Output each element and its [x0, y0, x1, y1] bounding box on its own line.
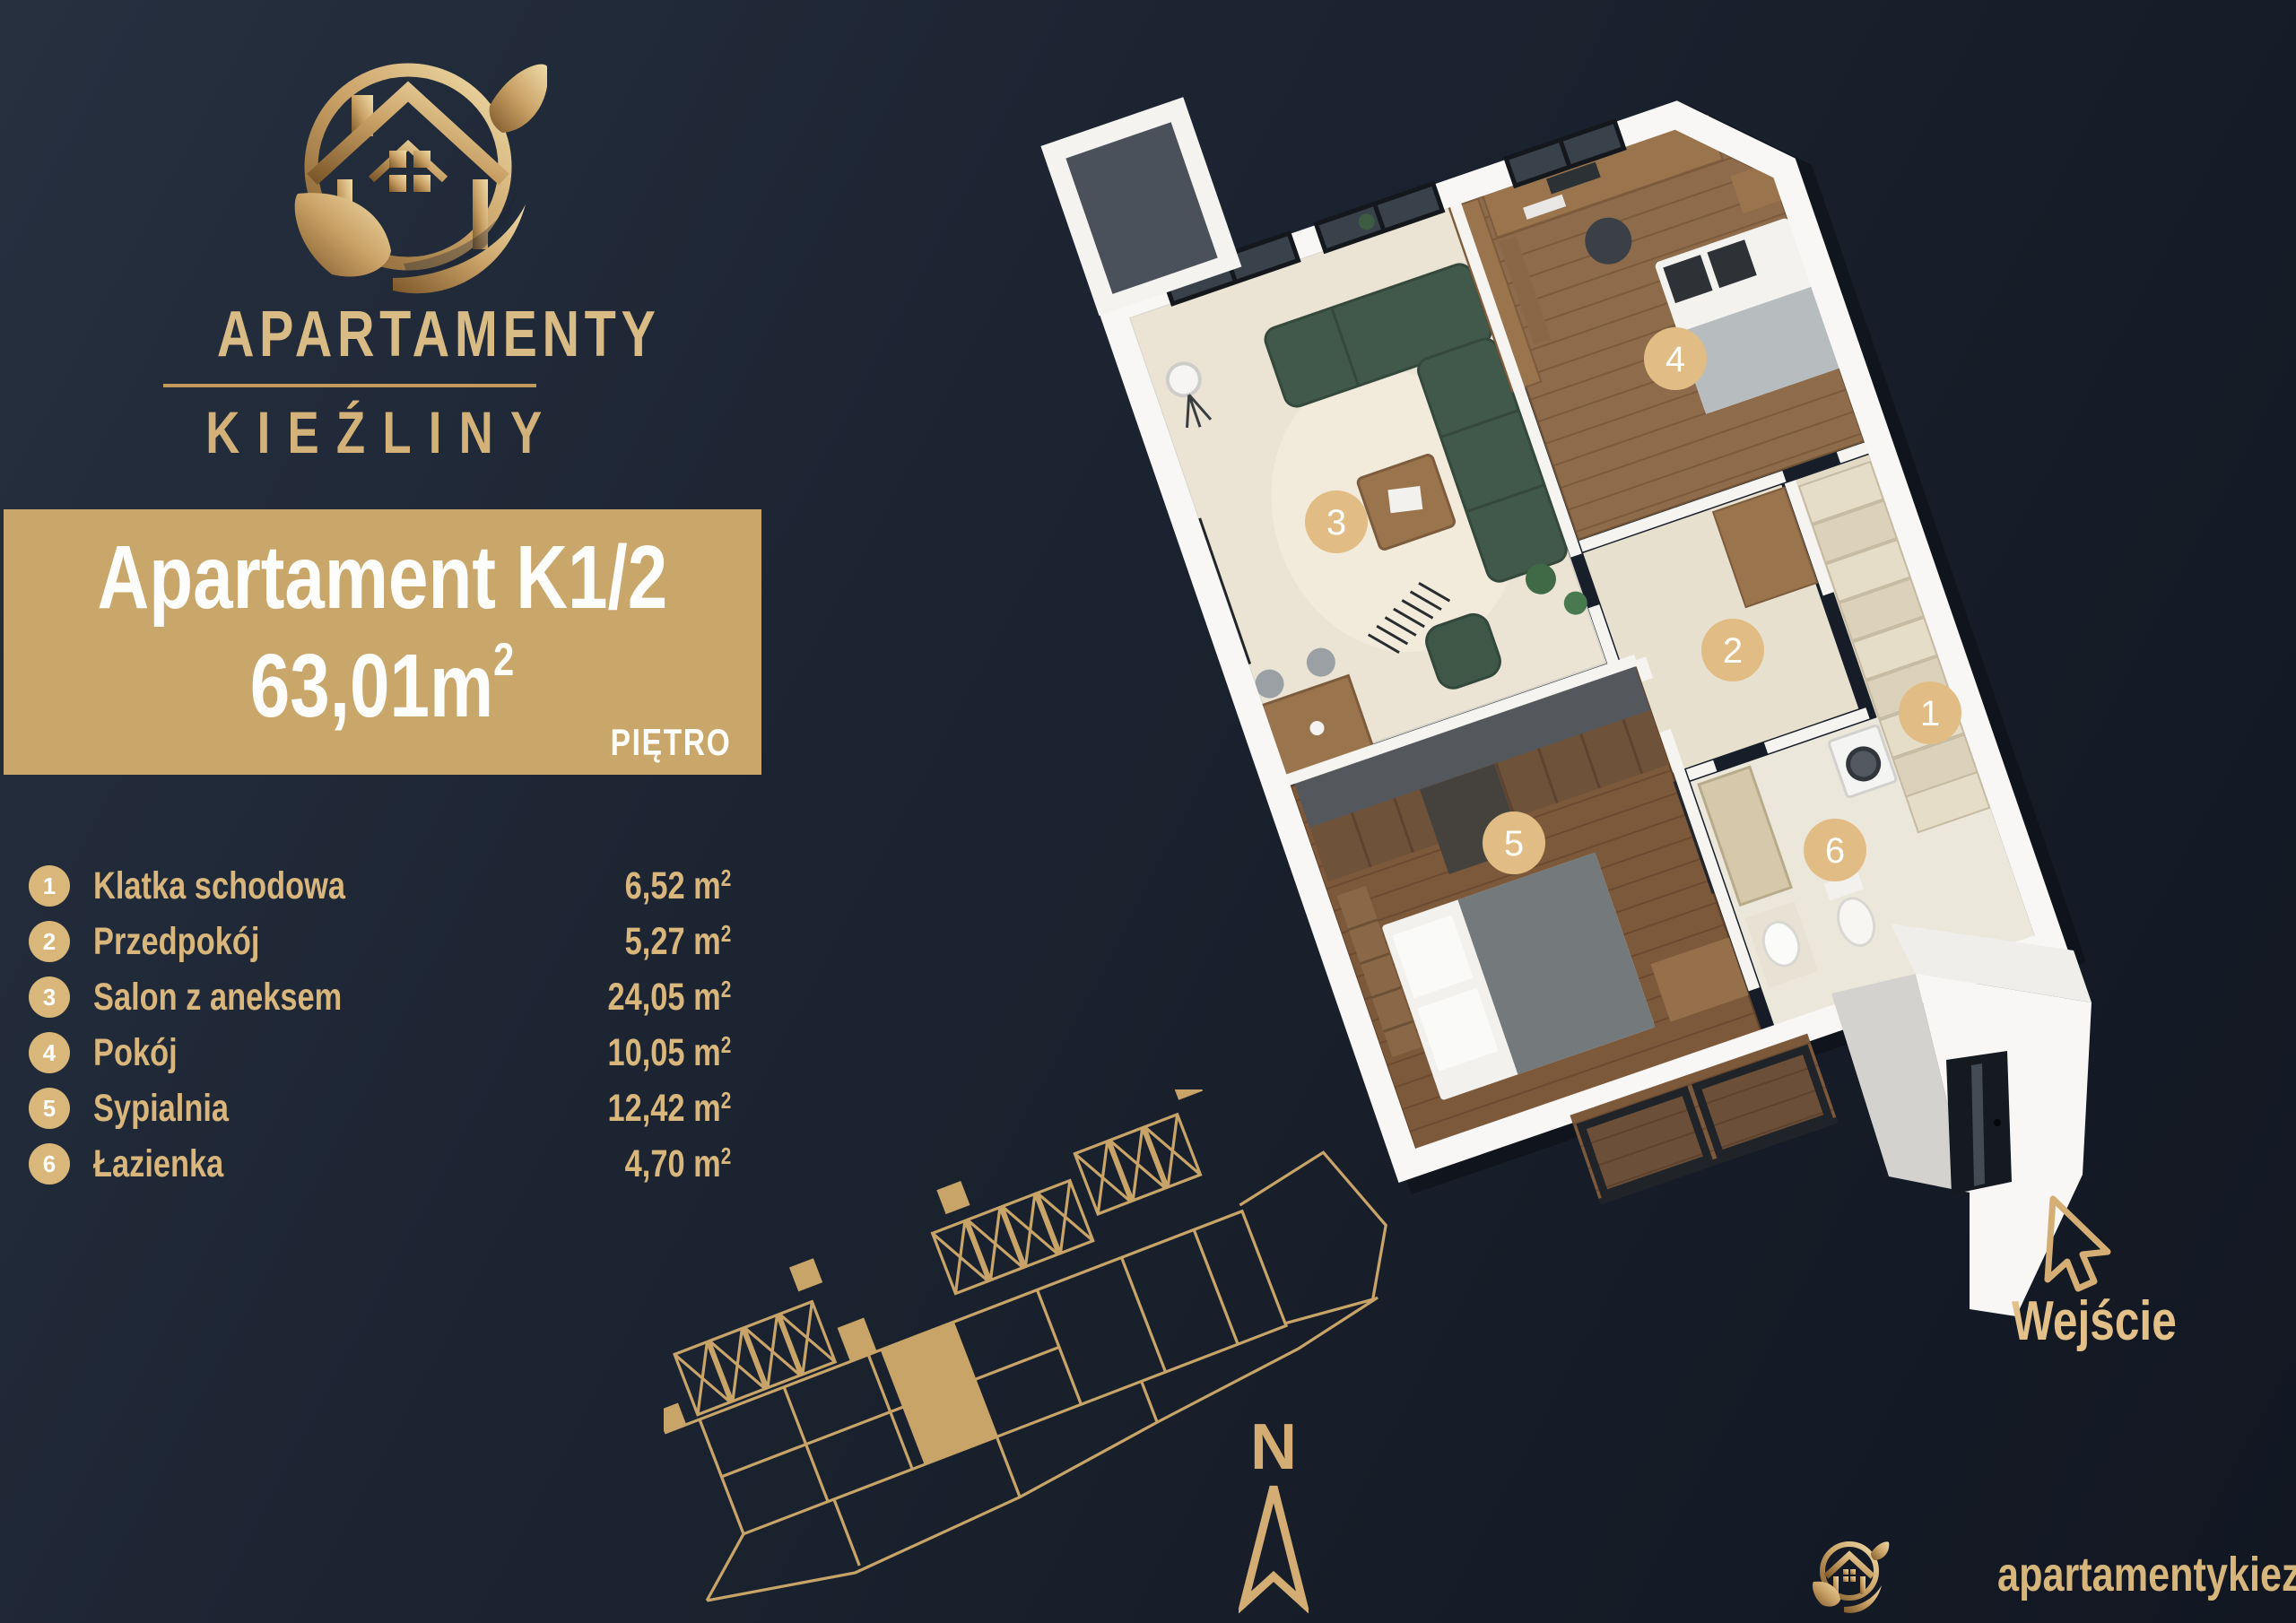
- flyer-canvas: APARTAMENTY KIEŹLINY Apartament K1/2 63,…: [0, 0, 2296, 1623]
- room-row-3: 3 Salon z aneksem 24,05 m2: [29, 969, 731, 1025]
- entrance-label-text: Wejście: [2012, 1289, 2177, 1353]
- book: [1387, 486, 1422, 513]
- room-area-value: 10,05 m: [607, 1031, 720, 1074]
- marker-number: 3: [1326, 503, 1346, 542]
- compass-north-label: N: [1231, 1415, 1317, 1480]
- brand-name-line1: APARTAMENTY: [217, 298, 661, 371]
- room-number-badge: 4: [29, 1032, 70, 1073]
- room-name: Klatka schodowa: [93, 864, 345, 908]
- marker-number: 2: [1723, 631, 1743, 671]
- room-number-badge: 2: [29, 921, 70, 962]
- unit-area-sup: 2: [494, 634, 515, 686]
- room-area-sup: 2: [720, 1031, 731, 1058]
- room-number-badge: 6: [29, 1143, 70, 1185]
- marker-4: 4: [1644, 327, 1707, 390]
- room-row-6: 6 Łazienka 4,70 m2: [29, 1136, 731, 1192]
- footer-logo-icon: [1808, 1533, 1891, 1616]
- room-name: Salon z aneksem: [93, 976, 342, 1020]
- door-handle: [1994, 1119, 2001, 1126]
- unit-title-panel: Apartament K1/2 63,01m2 PIĘTRO: [4, 509, 761, 775]
- marker-number: 6: [1825, 831, 1845, 871]
- highlighted-unit: [881, 1323, 997, 1465]
- room-area-value: 6,52 m: [624, 864, 720, 907]
- room-row-2: 2 Przedpokój 5,27 m2: [29, 914, 731, 969]
- room-area-sup: 2: [720, 976, 731, 1002]
- room-number: 6: [43, 1150, 56, 1178]
- house-leaf-logo-icon: [295, 65, 547, 294]
- room-name: Przedpokój: [93, 920, 259, 964]
- room-name: Łazienka: [93, 1142, 223, 1186]
- room-legend: 1 Klatka schodowa 6,52 m2 2 Przedpokój 5…: [29, 858, 731, 1192]
- room-name: Pokój: [93, 1031, 178, 1075]
- unit-area-value: 63,01m: [250, 636, 493, 736]
- room-area: 24,05 m2: [607, 976, 731, 1020]
- room-number: 4: [43, 1039, 56, 1067]
- floor-label: PIĘTRO: [610, 721, 731, 764]
- room-area-value: 24,05 m: [607, 976, 720, 1019]
- website-link[interactable]: apartamentykiezliny.pl: [1997, 1547, 2296, 1602]
- room-number: 2: [43, 928, 56, 956]
- room-area-sup: 2: [720, 864, 731, 891]
- room-area-sup: 2: [720, 920, 731, 947]
- marker-1: 1: [1899, 681, 1961, 744]
- brand-name-line2: KIEŹLINY: [205, 398, 559, 466]
- north-arrow-icon: [1239, 1480, 1309, 1614]
- entrance-label: Wejście: [1991, 1289, 2197, 1353]
- marker-6: 6: [1804, 819, 1866, 881]
- brand-divider: [163, 384, 536, 387]
- room-area: 10,05 m2: [607, 1031, 731, 1075]
- compass: N: [1231, 1415, 1317, 1619]
- marker-number: 4: [1665, 340, 1685, 379]
- room-name: Sypialnia: [93, 1087, 229, 1131]
- room-number: 1: [43, 872, 56, 900]
- footer-branding: apartamentykiezliny.pl: [1808, 1533, 2296, 1616]
- marker-5: 5: [1483, 811, 1545, 874]
- marker-3: 3: [1305, 490, 1368, 553]
- room-area: 5,27 m2: [624, 920, 731, 964]
- brand-wordmark: APARTAMENTY KIEŹLINY: [161, 298, 538, 466]
- marker-number: 1: [1920, 694, 1940, 733]
- room-number-badge: 5: [29, 1088, 70, 1129]
- unit-area: 63,01m2: [250, 637, 514, 731]
- brand-logo: [278, 43, 547, 299]
- room-number: 3: [43, 984, 56, 1011]
- room-area: 6,52 m2: [624, 864, 731, 908]
- room-row-1: 1 Klatka schodowa 6,52 m2: [29, 858, 731, 914]
- room-row-5: 5 Sypialnia 12,42 m2: [29, 1081, 731, 1136]
- room-number-badge: 1: [29, 865, 70, 907]
- room-number: 5: [43, 1095, 56, 1123]
- room-number-badge: 3: [29, 976, 70, 1018]
- room-row-4: 4 Pokój 10,05 m2: [29, 1025, 731, 1081]
- marker-number: 5: [1504, 824, 1524, 864]
- unit-title: Apartament K1/2: [98, 533, 668, 622]
- room-area-value: 5,27 m: [624, 920, 720, 963]
- marker-2: 2: [1701, 619, 1764, 681]
